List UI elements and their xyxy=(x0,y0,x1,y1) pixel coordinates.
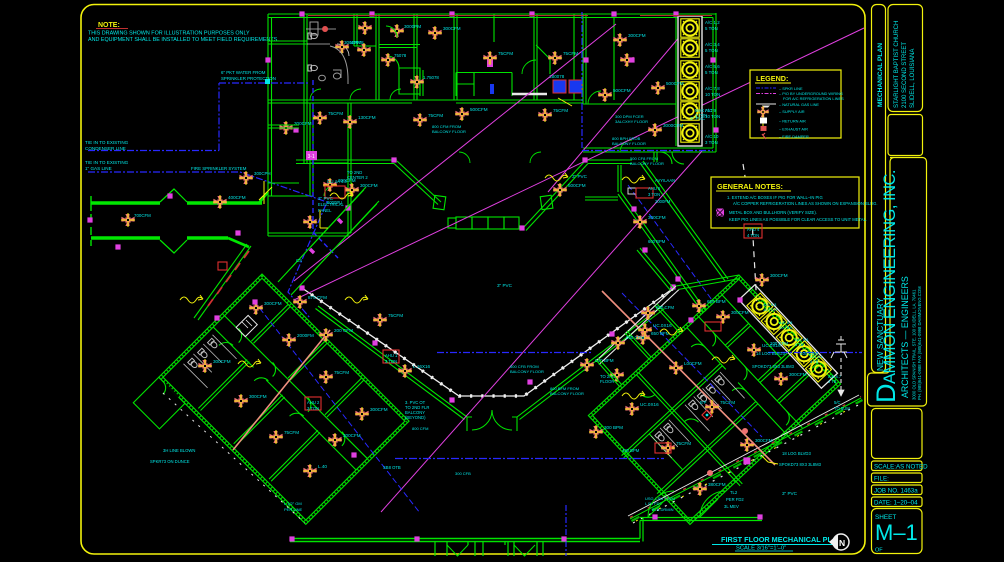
svg-text:430 BPM: 430 BPM xyxy=(622,448,640,453)
svg-text:875 CFM: 875 CFM xyxy=(308,295,327,300)
svg-text:TO 5UM: TO 5UM xyxy=(834,406,850,411)
svg-text:600 CFM: 600 CFM xyxy=(656,305,674,310)
svg-text:3000PM: 3000PM xyxy=(404,24,421,29)
svg-text:SCALE:AS NOTED: SCALE:AS NOTED xyxy=(874,464,928,471)
svg-text:PER FD2: PER FD2 xyxy=(726,497,744,502)
svg-text:BALCONY FLOOR: BALCONY FLOOR xyxy=(510,369,544,374)
svg-text:N: N xyxy=(839,538,845,548)
svg-text:KEEP PIG LINES AS POSSIBLE FOR: KEEP PIG LINES AS POSSIBLE FOR CLEAR ACC… xyxy=(729,217,867,222)
svg-text:(BEYOND): (BEYOND) xyxy=(405,415,426,420)
svg-text:A/C 5,6: A/C 5,6 xyxy=(705,64,720,69)
svg-text:500CFM: 500CFM xyxy=(666,81,684,86)
svg-text:L.16X16: L.16X16 xyxy=(413,364,431,369)
svg-text:3" PVC: 3" PVC xyxy=(497,283,513,288)
svg-text:300CFM: 300CFM xyxy=(370,407,388,412)
svg-text:STARLIGHT BAPTIST CHURCH: STARLIGHT BAPTIST CHURCH xyxy=(894,21,900,108)
svg-text:– NATURAL GAS LINE: – NATURAL GAS LINE xyxy=(779,102,819,107)
svg-text:75CFM: 75CFM xyxy=(328,111,343,116)
svg-text:500CFM: 500CFM xyxy=(613,88,631,93)
svg-text:AND EQUIPMENT SHALL BE INSTALL: AND EQUIPMENT SHALL BE INSTALLED TO MEET… xyxy=(88,37,279,43)
svg-text:300CFM: 300CFM xyxy=(628,33,646,38)
svg-text:14 LOG BLVD3: 14 LOG BLVD3 xyxy=(756,351,785,356)
svg-text:3L MEV: 3L MEV xyxy=(724,504,739,509)
svg-text:3 TB: 3 TB xyxy=(810,359,819,364)
svg-text:THIS DRAWING SHOWN FOR ILLUSTR: THIS DRAWING SHOWN FOR ILLUSTRATION PURP… xyxy=(88,31,250,37)
svg-text:– FIRE DAMPER: – FIRE DAMPER xyxy=(779,134,809,139)
svg-text:CS: CS xyxy=(296,258,302,263)
svg-text:300CFM: 300CFM xyxy=(770,273,788,278)
svg-text:BALCONY FLOOR: BALCONY FLOOR xyxy=(550,391,584,396)
svg-text:300CFM: 300CFM xyxy=(249,394,267,399)
svg-text:A/C 10: A/C 10 xyxy=(705,134,719,139)
svg-text:SPOKD73 8X3 3L8M3: SPOKD73 8X3 3L8M3 xyxy=(752,364,795,369)
svg-text:AHU 5: AHU 5 xyxy=(648,186,661,191)
svg-text:2100 SECOND STREET: 2100 SECOND STREET xyxy=(902,42,908,108)
svg-text:130CFM: 130CFM xyxy=(358,115,376,120)
svg-text:500CFM: 500CFM xyxy=(470,107,488,112)
svg-text:A/C 7,8: A/C 7,8 xyxy=(705,86,720,91)
svg-text:75078: 75078 xyxy=(394,53,407,58)
svg-text:L 1/2" GM: L 1/2" GM xyxy=(284,501,302,506)
svg-text:6" PKT WATER FROM: 6" PKT WATER FROM xyxy=(221,70,266,75)
svg-text:650 BFM: 650 BFM xyxy=(707,299,726,304)
svg-text:L.40: L.40 xyxy=(318,464,327,469)
svg-text:– RETURN AIR: – RETURN AIR xyxy=(779,119,806,124)
svg-text:AHU 4: AHU 4 xyxy=(747,227,760,232)
svg-text:5 TON: 5 TON xyxy=(705,48,718,53)
svg-text:300CFM: 300CFM xyxy=(360,183,378,188)
svg-text:CONDENSER LINE: CONDENSER LINE xyxy=(85,146,126,151)
svg-text:1. EXTEND A/C BOXES IF PIG FOR: 1. EXTEND A/C BOXES IF PIG FOR WALL–IN P… xyxy=(727,195,823,200)
svg-text:JOB NO. 1463a: JOB NO. 1463a xyxy=(874,488,918,495)
svg-text:NOTE:: NOTE: xyxy=(98,22,120,29)
svg-text:3 TON: 3 TON xyxy=(307,406,319,411)
svg-text:BALCONY FLOOR: BALCONY FLOOR xyxy=(612,141,646,146)
svg-text:SB8 OTB: SB8 OTB xyxy=(383,465,401,470)
svg-text:SPOKD73 8X3 3L8M3: SPOKD73 8X3 3L8M3 xyxy=(779,462,822,467)
svg-text:AHU 1: AHU 1 xyxy=(385,353,398,358)
svg-text:10 TON: 10 TON xyxy=(705,114,720,119)
svg-text:3 TON: 3 TON xyxy=(648,192,660,197)
svg-text:FOR A/C REFRIGERATION LINES: FOR A/C REFRIGERATION LINES xyxy=(783,96,844,101)
svg-text:FLOOR: FLOOR xyxy=(600,379,614,384)
svg-text:75CFM: 75CFM xyxy=(676,441,691,446)
svg-text:1.75078: 1.75078 xyxy=(423,75,439,80)
svg-text:FILE:: FILE: xyxy=(874,476,889,483)
svg-text:300CFM: 300CFM xyxy=(264,301,282,306)
svg-text:600 BPM: 600 BPM xyxy=(648,239,666,244)
svg-text:300CFM: 300CFM xyxy=(789,372,807,377)
svg-text:AVYILAAN: AVYILAAN xyxy=(655,178,675,183)
svg-text:4 TON: 4 TON xyxy=(695,113,707,118)
svg-text:5/C: 5/C xyxy=(834,400,841,405)
svg-text:300CFM: 300CFM xyxy=(443,26,461,31)
svg-text:UC.0X16: UC.0X16 xyxy=(640,402,659,407)
svg-text:3" PVC: 3" PVC xyxy=(782,491,798,496)
svg-text:300CFM: 300CFM xyxy=(213,359,231,364)
svg-text:3 TON: 3 TON xyxy=(705,140,718,145)
svg-text:OF: OF xyxy=(875,548,883,554)
svg-text:8 TB: 8 TB xyxy=(795,342,804,347)
svg-text:3000PM: 3000PM xyxy=(344,40,361,45)
svg-text:3 TON: 3 TON xyxy=(385,359,397,364)
svg-text:500CFM: 500CFM xyxy=(568,183,586,188)
svg-text:A/C COPPER REFRIGERATION LINES: A/C COPPER REFRIGERATION LINES AS SHOWN … xyxy=(733,201,878,206)
svg-text:2000FM: 2000FM xyxy=(297,333,314,338)
svg-text:L00CFM: L00CFM xyxy=(684,361,702,366)
svg-text:TL2: TL2 xyxy=(730,490,738,495)
svg-text:TIE IN TO EXISTING: TIE IN TO EXISTING xyxy=(85,160,129,165)
svg-text:5 TON: 5 TON xyxy=(705,26,718,31)
svg-text:A/C 1,2: A/C 1,2 xyxy=(705,20,720,25)
svg-text:M–1: M–1 xyxy=(875,520,918,545)
svg-text:CLI 4A 4.3: CLI 4A 4.3 xyxy=(327,179,347,184)
svg-text:10 TCH: 10 TCH xyxy=(763,307,777,312)
svg-text:SLIDELL, LOUISIANA: SLIDELL, LOUISIANA xyxy=(910,49,916,108)
svg-text:3 TB: 3 TB xyxy=(828,379,837,384)
svg-text:2000FM: 2000FM xyxy=(655,199,671,204)
svg-text:GENERAL NOTES:: GENERAL NOTES: xyxy=(717,182,783,191)
svg-text:A/C 3,4: A/C 3,4 xyxy=(705,42,720,47)
svg-text:75CFM: 75CFM xyxy=(563,51,578,56)
svg-text:75CFM: 75CFM xyxy=(720,400,735,405)
svg-text:1B0078: 1B0078 xyxy=(549,74,565,79)
svg-text:200 CFM: 200 CFM xyxy=(334,328,353,333)
svg-text:300CFM: 300CFM xyxy=(755,438,773,443)
svg-text:300 BPM: 300 BPM xyxy=(604,425,623,430)
svg-text:75CFM: 75CFM xyxy=(498,51,513,56)
svg-text:600 CFM: 600 CFM xyxy=(626,335,644,340)
svg-text:400CFM: 400CFM xyxy=(228,195,246,200)
svg-text:BALCONY FLOOR: BALCONY FLOOR xyxy=(432,129,466,134)
svg-text:CENTER 2: CENTER 2 xyxy=(347,175,368,180)
svg-text:– EXHAUST AIR: – EXHAUST AIR xyxy=(779,127,808,132)
svg-text:TIE IN TO EXISTING: TIE IN TO EXISTING xyxy=(85,140,129,145)
svg-text:5 TON: 5 TON xyxy=(705,70,718,75)
svg-text:3" PVC: 3" PVC xyxy=(572,174,588,179)
svg-text:3H LINE BLOWN: 3H LINE BLOWN xyxy=(163,448,195,453)
svg-text:FIRE SPRINKLER SYSTEM: FIRE SPRINKLER SYSTEM xyxy=(191,166,247,171)
svg-text:3-1: 3-1 xyxy=(308,154,315,160)
svg-text:UC.0X16: UC.0X16 xyxy=(653,323,672,328)
svg-text:FIRST FLOOR MECHANICAL PLAN: FIRST FLOOR MECHANICAL PLAN xyxy=(721,535,842,544)
svg-text:SPKR73 ON DUNCE: SPKR73 ON DUNCE xyxy=(150,459,190,464)
svg-text:PER LINE: PER LINE xyxy=(284,507,303,512)
svg-text:DATE: 1–20–04: DATE: 1–20–04 xyxy=(874,500,918,507)
svg-text:18 LOG BLVD3: 18 LOG BLVD3 xyxy=(782,451,811,456)
svg-text:3ALCXHY FLOOR: 3ALCXHY FLOOR xyxy=(615,119,648,124)
svg-text:300CFM: 300CFM xyxy=(731,310,749,315)
svg-text:– SUPPLY AIR: – SUPPLY AIR xyxy=(779,109,805,114)
svg-text:4 TON: 4 TON xyxy=(747,233,759,238)
svg-text:75CFM: 75CFM xyxy=(553,108,568,113)
svg-text:300CFM: 300CFM xyxy=(343,433,361,438)
svg-text:MECHANICAL PLAN: MECHANICAL PLAN xyxy=(877,43,884,107)
svg-text:3000 OLD SPANISH TRAIL, STE. 1: 3000 OLD SPANISH TRAIL, STE. 100 SLIDELL… xyxy=(912,289,917,400)
svg-text:300CFM: 300CFM xyxy=(648,215,666,220)
svg-text:B'P: B'P xyxy=(700,400,707,405)
svg-text:PH. (985)641-0988 FAX (985)6: PH. (985)641-0988 FAX (985)641-0998 DAMM… xyxy=(917,286,922,400)
svg-text:3000CFM: 3000CFM xyxy=(663,123,683,128)
svg-text:1" GAS LINE: 1" GAS LINE xyxy=(85,166,112,171)
svg-text:200 CFM: 200 CFM xyxy=(770,341,788,346)
svg-text:METAL BOX AND BULLHORN (VERIFY: METAL BOX AND BULLHORN (VERIFY SIZE). xyxy=(729,210,817,215)
svg-text:800 CFM: 800 CFM xyxy=(412,426,428,431)
svg-text:LEGEND:: LEGEND: xyxy=(756,74,788,83)
svg-text:75CFM: 75CFM xyxy=(388,313,403,318)
svg-text:ARCHITECTS — ENGINEERS: ARCHITECTS — ENGINEERS xyxy=(900,276,910,398)
svg-text:8000PU: 8000PU xyxy=(327,200,342,205)
svg-text:700CFM: 700CFM xyxy=(134,213,151,218)
svg-text:75CFM: 75CFM xyxy=(428,113,443,118)
svg-text:300 CFB: 300 CFB xyxy=(455,471,471,476)
svg-text:10 TON: 10 TON xyxy=(705,92,720,97)
svg-text:75CFM: 75CFM xyxy=(284,430,299,435)
svg-text:75CFM: 75CFM xyxy=(334,370,349,375)
svg-text:380CFM: 380CFM xyxy=(708,482,726,487)
svg-text:300CPH: 300CPH xyxy=(254,171,271,176)
svg-text:30 TBH: 30 TBH xyxy=(779,325,793,330)
svg-text:BALCONY FLOOR: BALCONY FLOOR xyxy=(630,161,664,166)
svg-text:AHU 2: AHU 2 xyxy=(307,400,320,405)
